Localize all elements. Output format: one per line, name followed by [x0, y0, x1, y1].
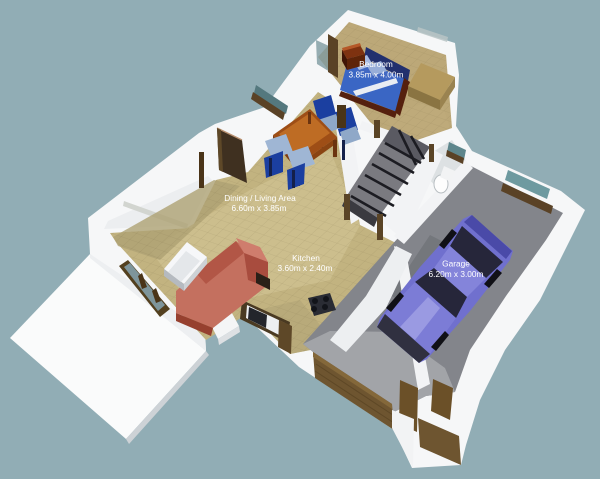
svg-text:Garage: Garage — [442, 259, 470, 269]
svg-text:6.20m x 3.00m: 6.20m x 3.00m — [429, 269, 484, 279]
svg-text:3.60m x 2.40m: 3.60m x 2.40m — [278, 263, 333, 273]
svg-text:Bedroom: Bedroom — [359, 59, 393, 69]
svg-text:3.85m x 4.00m: 3.85m x 4.00m — [349, 70, 404, 80]
svg-text:Kitchen: Kitchen — [292, 253, 320, 263]
svg-text:6.60m x 3.85m: 6.60m x 3.85m — [232, 203, 287, 213]
svg-text:Dining / Living Area: Dining / Living Area — [224, 193, 296, 203]
